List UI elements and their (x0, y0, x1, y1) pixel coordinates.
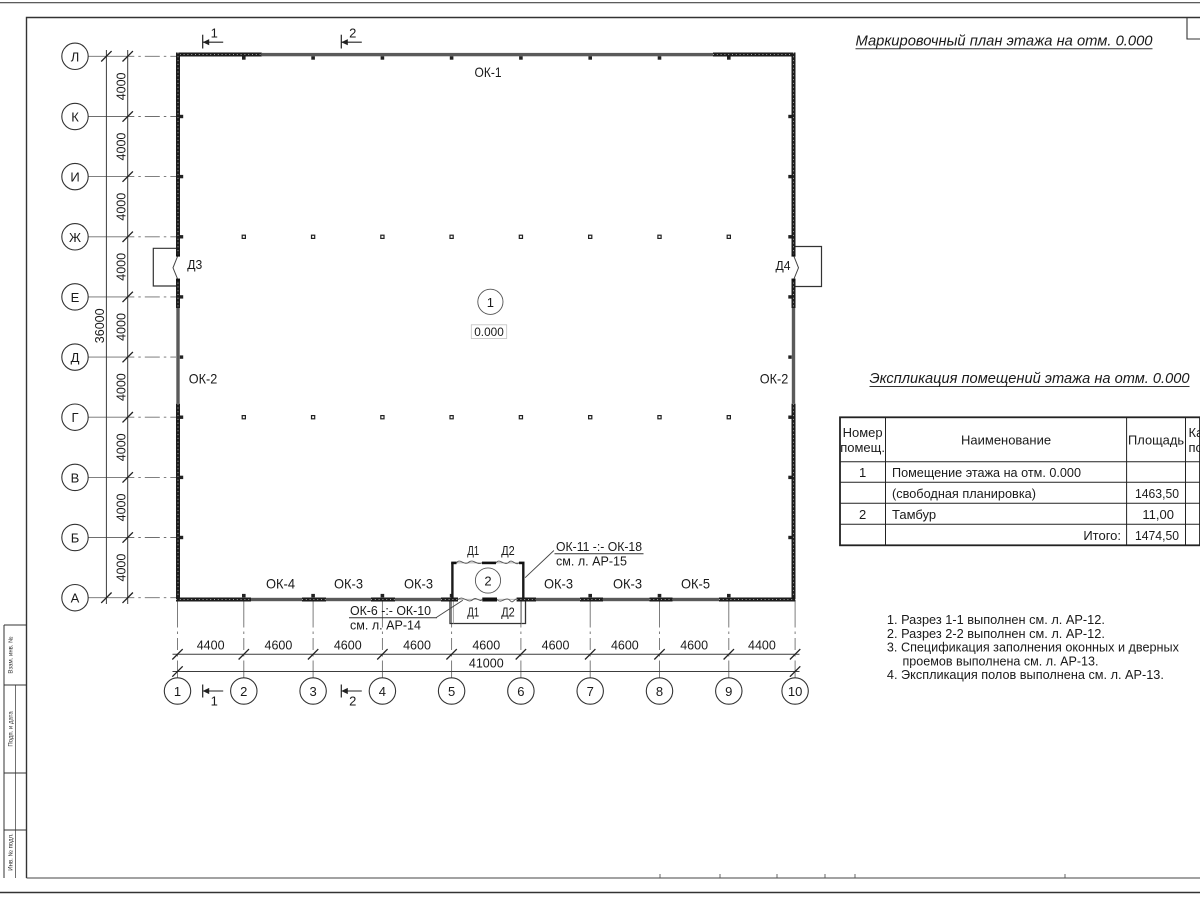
svg-text:7: 7 (587, 684, 594, 699)
svg-text:4000: 4000 (114, 373, 128, 401)
svg-text:3: 3 (309, 684, 316, 699)
svg-text:4: 4 (379, 684, 386, 699)
svg-text:Инв. № подл.: Инв. № подл. (8, 833, 15, 871)
svg-text:Д4: Д4 (776, 259, 791, 273)
svg-text:ОК-11 -:- ОК-18: ОК-11 -:- ОК-18 (556, 539, 642, 554)
svg-text:8: 8 (656, 684, 663, 699)
svg-text:Д1: Д1 (467, 544, 479, 558)
svg-text:4600: 4600 (334, 639, 362, 653)
svg-text:(свободная планировка): (свободная планировка) (892, 486, 1036, 501)
svg-text:41000: 41000 (469, 656, 504, 670)
svg-text:4000: 4000 (114, 313, 128, 341)
svg-text:4600: 4600 (611, 639, 639, 653)
svg-text:5: 5 (448, 684, 455, 699)
svg-text:Б: Б (71, 531, 80, 546)
svg-text:ОК-3: ОК-3 (334, 575, 363, 591)
svg-text:4600: 4600 (542, 639, 570, 653)
svg-text:ОК-5: ОК-5 (681, 575, 710, 591)
svg-text:4000: 4000 (114, 433, 128, 461)
svg-text:ОК-3: ОК-3 (613, 575, 642, 591)
svg-text:1: 1 (211, 693, 218, 708)
svg-text:4000: 4000 (114, 494, 128, 522)
svg-text:4600: 4600 (680, 639, 708, 653)
svg-text:Помещение этажа на отм. 0.000: Помещение этажа на отм. 0.000 (892, 465, 1081, 480)
svg-text:Маркировочный план этажа на от: Маркировочный план этажа на отм. 0.000 (856, 33, 1154, 50)
svg-text:Д: Д (71, 350, 80, 365)
svg-text:ОК-1: ОК-1 (475, 64, 502, 80)
svg-text:ОК-4: ОК-4 (266, 575, 295, 591)
svg-text:2: 2 (859, 507, 866, 522)
svg-text:0.000: 0.000 (474, 325, 504, 339)
svg-text:9: 9 (725, 684, 732, 699)
svg-text:4000: 4000 (114, 193, 128, 221)
svg-text:1: 1 (487, 295, 494, 310)
svg-text:10: 10 (788, 684, 802, 699)
svg-text:Д3: Д3 (187, 258, 202, 272)
svg-text:Л: Л (71, 49, 80, 64)
svg-text:К: К (71, 110, 79, 125)
svg-text:см. л. АР-15: см. л. АР-15 (556, 553, 627, 568)
svg-text:4400: 4400 (197, 639, 225, 653)
svg-text:помещ.: помещ. (840, 440, 885, 455)
svg-text:ОК-6 -:- ОК-10: ОК-6 -:- ОК-10 (350, 603, 431, 618)
svg-text:ОК-2: ОК-2 (760, 370, 789, 386)
svg-text:см. л. АР-14: см. л. АР-14 (350, 617, 421, 632)
svg-text:Д2: Д2 (501, 544, 515, 558)
svg-text:Ж: Ж (69, 230, 81, 245)
svg-text:ОК-3: ОК-3 (404, 575, 433, 591)
svg-text:4600: 4600 (265, 639, 293, 653)
svg-text:Г: Г (71, 410, 78, 425)
svg-text:4600: 4600 (472, 639, 500, 653)
svg-text:Ка: Ка (1189, 425, 1200, 440)
svg-text:1463,50: 1463,50 (1135, 486, 1179, 501)
svg-text:Номер: Номер (843, 425, 883, 440)
svg-text:Тамбур: Тамбур (892, 507, 936, 522)
svg-text:Взам. инв. №: Взам. инв. № (8, 636, 15, 673)
svg-text:1: 1 (859, 465, 866, 480)
svg-text:Экспликация помещений этажа на: Экспликация помещений этажа на отм. 0.00… (870, 370, 1191, 387)
svg-text:А: А (71, 591, 80, 606)
svg-text:В: В (71, 470, 80, 485)
svg-text:36000: 36000 (93, 308, 107, 343)
svg-text:1: 1 (174, 684, 181, 699)
svg-text:4400: 4400 (748, 639, 776, 653)
svg-text:2: 2 (349, 26, 356, 41)
svg-text:1: 1 (211, 26, 218, 41)
svg-text:Площадь: Площадь (1128, 433, 1184, 448)
svg-text:4000: 4000 (114, 554, 128, 582)
svg-text:ОК-3: ОК-3 (544, 575, 573, 591)
svg-text:2: 2 (349, 693, 356, 708)
svg-text:Итого:: Итого: (1083, 528, 1121, 543)
svg-text:1474,50: 1474,50 (1135, 528, 1179, 543)
svg-text:Д2: Д2 (501, 606, 515, 620)
svg-text:по: по (1189, 440, 1200, 455)
svg-text:4000: 4000 (114, 133, 128, 161)
svg-text:4600: 4600 (403, 639, 431, 653)
svg-text:2: 2 (240, 684, 247, 699)
svg-text:4. Экспликация полов выполнена: 4. Экспликация полов выполнена см. л. АР… (887, 667, 1164, 682)
svg-text:Е: Е (71, 290, 80, 305)
svg-text:ОК-2: ОК-2 (189, 370, 218, 386)
svg-text:И: И (70, 170, 79, 185)
svg-text:4000: 4000 (114, 72, 128, 100)
svg-text:11,00: 11,00 (1142, 507, 1174, 522)
svg-text:Наименование: Наименование (961, 433, 1051, 448)
svg-text:Д1: Д1 (467, 606, 479, 620)
svg-text:2: 2 (484, 574, 491, 589)
svg-text:6: 6 (517, 684, 524, 699)
svg-text:Подп. и дата: Подп. и дата (9, 711, 15, 747)
svg-text:4000: 4000 (114, 253, 128, 281)
